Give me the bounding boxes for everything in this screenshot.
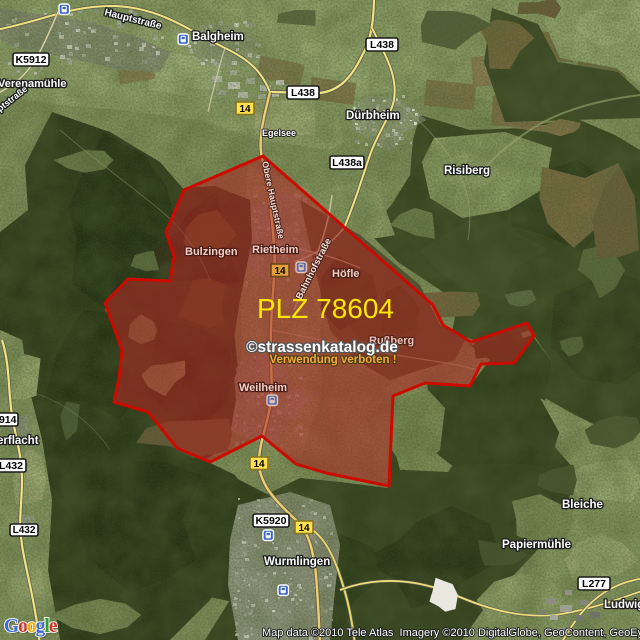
svg-text:Map data ©2010 Tele Atlas Ima: Map data ©2010 Tele Atlas Imagery ©2010 … bbox=[262, 627, 640, 639]
svg-text:K5920: K5920 bbox=[256, 515, 287, 527]
svg-text:Verwendung verboten !: Verwendung verboten ! bbox=[269, 354, 396, 366]
svg-text:Egelsee: Egelsee bbox=[262, 128, 296, 138]
svg-text:L438: L438 bbox=[291, 87, 315, 99]
svg-text:PLZ 78604: PLZ 78604 bbox=[257, 293, 394, 324]
svg-text:Balgheim: Balgheim bbox=[192, 31, 244, 43]
svg-text:14: 14 bbox=[274, 266, 286, 277]
svg-text:Dürbheim: Dürbheim bbox=[346, 110, 400, 122]
svg-text:Bulzingen: Bulzingen bbox=[185, 246, 238, 258]
svg-text:L438: L438 bbox=[370, 39, 394, 51]
svg-text:K5912: K5912 bbox=[16, 54, 47, 66]
svg-text:L277: L277 bbox=[582, 578, 606, 590]
svg-text:14: 14 bbox=[298, 523, 310, 534]
svg-text:Google: Google bbox=[4, 616, 58, 637]
svg-text:14: 14 bbox=[253, 459, 265, 470]
svg-text:Rietheim: Rietheim bbox=[252, 244, 299, 256]
svg-text:L438a: L438a bbox=[332, 157, 362, 169]
svg-text:K5914: K5914 bbox=[0, 414, 17, 426]
svg-text:erflacht: erflacht bbox=[0, 435, 39, 447]
svg-text:Bleiche: Bleiche bbox=[562, 499, 603, 511]
svg-text:14: 14 bbox=[239, 104, 251, 115]
svg-text:L432: L432 bbox=[13, 525, 36, 536]
svg-text:Papiermühle: Papiermühle bbox=[502, 539, 571, 551]
svg-text:Wurmlingen: Wurmlingen bbox=[264, 556, 330, 568]
svg-text:Verenamühle: Verenamühle bbox=[0, 78, 66, 90]
svg-text:L432: L432 bbox=[0, 460, 23, 472]
svg-text:Ludwigst: Ludwigst bbox=[604, 599, 640, 611]
svg-text:Weilheim: Weilheim bbox=[239, 382, 287, 394]
svg-text:Risiberg: Risiberg bbox=[444, 165, 490, 177]
svg-text:Höfle: Höfle bbox=[332, 268, 360, 280]
